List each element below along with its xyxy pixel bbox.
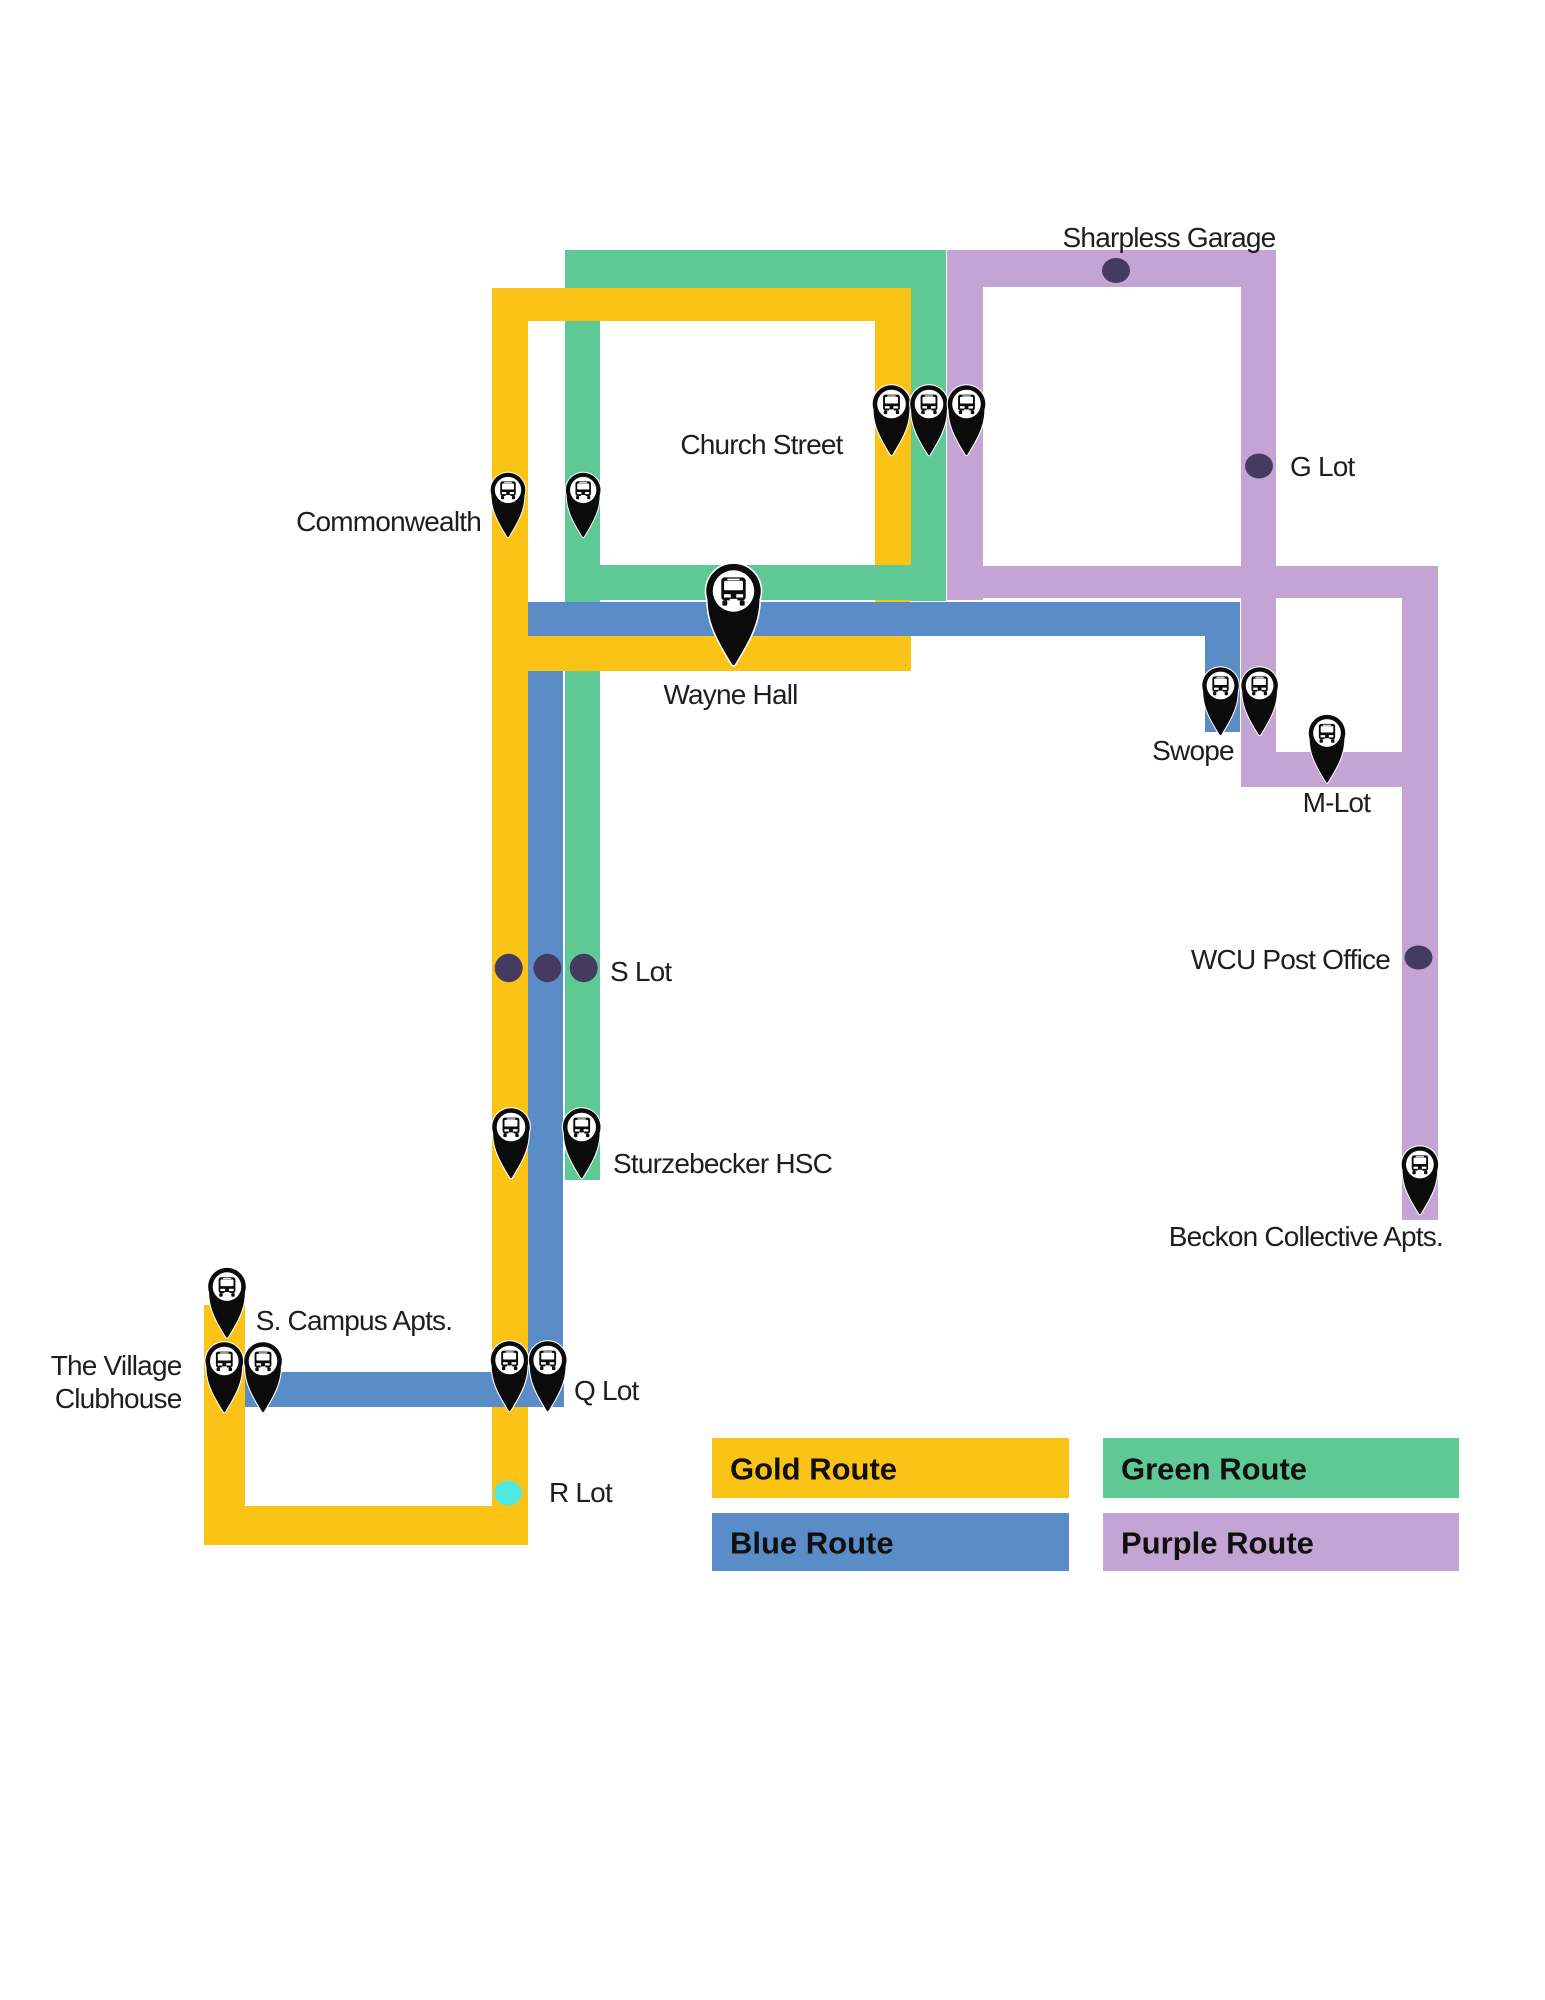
svg-text:Swope: Swope bbox=[1152, 735, 1234, 766]
svg-text:The Village: The Village bbox=[51, 1350, 182, 1381]
svg-text:S. Campus Apts.: S. Campus Apts. bbox=[256, 1305, 453, 1336]
svg-text:Purple Route: Purple Route bbox=[1121, 1526, 1314, 1561]
svg-text:M-Lot: M-Lot bbox=[1303, 787, 1372, 818]
svg-text:Sturzebecker HSC: Sturzebecker HSC bbox=[613, 1148, 833, 1179]
svg-text:WCU Post Office: WCU Post Office bbox=[1191, 944, 1390, 975]
svg-text:G Lot: G Lot bbox=[1290, 451, 1356, 482]
svg-text:Sharpless Garage: Sharpless Garage bbox=[1063, 222, 1276, 253]
svg-text:Clubhouse: Clubhouse bbox=[55, 1383, 182, 1414]
svg-text:Q Lot: Q Lot bbox=[574, 1375, 640, 1406]
svg-text:R Lot: R Lot bbox=[549, 1477, 613, 1508]
svg-text:Wayne Hall: Wayne Hall bbox=[663, 679, 797, 710]
svg-text:Gold Route: Gold Route bbox=[730, 1452, 897, 1487]
svg-text:Beckon Collective Apts.: Beckon Collective Apts. bbox=[1169, 1221, 1443, 1252]
svg-text:Commonwealth: Commonwealth bbox=[296, 506, 481, 537]
svg-text:Church Street: Church Street bbox=[680, 429, 843, 460]
svg-text:Green Route: Green Route bbox=[1121, 1452, 1307, 1487]
svg-text:Blue Route: Blue Route bbox=[730, 1526, 894, 1561]
svg-text:S Lot: S Lot bbox=[610, 956, 672, 987]
